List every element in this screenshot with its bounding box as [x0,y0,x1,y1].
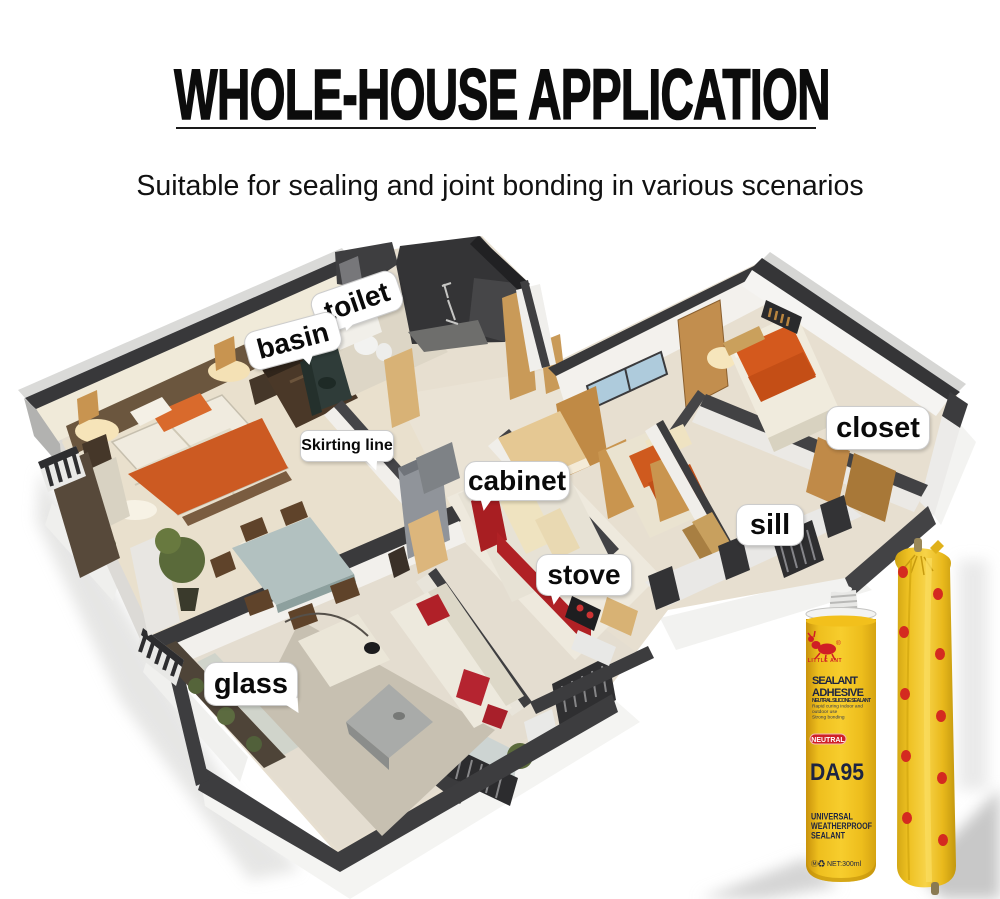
svg-text:Ⓜ♻ NET:300ml: Ⓜ♻ NET:300ml [811,860,862,868]
svg-text:UNIVERSAL: UNIVERSAL [811,812,853,822]
svg-text:NEUTRAL: NEUTRAL [811,737,845,744]
svg-text:®: ® [836,639,841,647]
svg-text:SEALANT: SEALANT [812,675,858,687]
svg-text:SEALANT: SEALANT [811,831,845,841]
svg-text:Strong bonding: Strong bonding [812,715,845,721]
svg-text:WEATHERPROOF: WEATHERPROOF [811,821,872,831]
svg-text:NEUTRAL SILICONE SEALANT: NEUTRAL SILICONE SEALANT [812,698,872,704]
svg-text:outdoor use: outdoor use [812,709,838,715]
svg-text:LITTLE ANT: LITTLE ANT [808,658,842,664]
svg-text:DA95: DA95 [810,759,864,786]
svg-text:Rapid curing indoor and: Rapid curing indoor and [812,704,863,710]
